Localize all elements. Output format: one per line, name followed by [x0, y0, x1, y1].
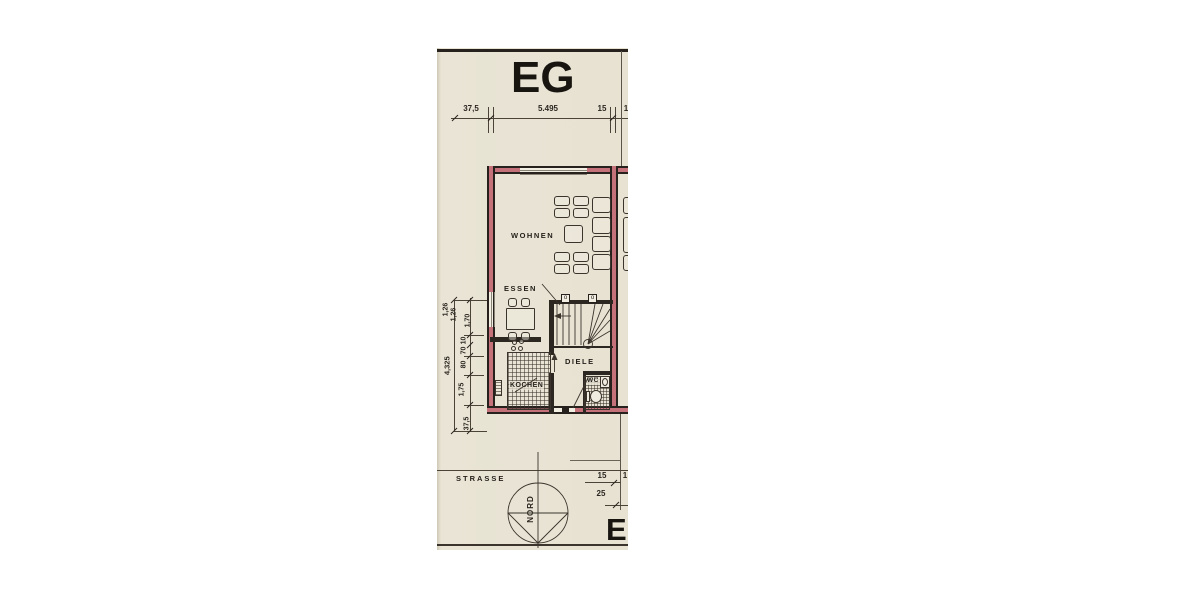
left-dim-label-5: 70	[461, 344, 468, 358]
br-dim-upper-partial: 1	[621, 472, 628, 480]
stair-pivot-right: o	[588, 294, 597, 303]
wc-toilet-bowl	[590, 390, 602, 403]
screenshot-canvas: EG 37,5 5.495 15 1	[0, 0, 1200, 600]
neighbour-sofa-cut	[623, 217, 628, 253]
left-dim-ext	[454, 431, 487, 432]
armchair	[592, 217, 611, 234]
next-sheet-title: EI	[606, 514, 628, 545]
left-dim-label-1: 1,26	[443, 298, 450, 322]
kitchen-pass-arrow	[552, 353, 558, 372]
staircase	[554, 304, 610, 349]
top-dim-label-3: 15	[594, 105, 610, 113]
street-label: STRASSE	[456, 475, 505, 483]
sofa-cushion	[554, 208, 570, 218]
hall-label: DIELE	[565, 358, 595, 366]
left-dim-label-8: 37,5	[464, 412, 471, 436]
top-dim-ext-2	[493, 107, 494, 133]
top-dim-label-2: 5.495	[532, 105, 564, 113]
sofa-cushion	[554, 196, 570, 206]
cooktop-burner	[512, 340, 517, 345]
dining-table	[506, 308, 535, 330]
wc-washbasin	[600, 376, 610, 388]
wall-wc-top	[583, 371, 610, 375]
window-north	[520, 168, 587, 172]
top-dim-label-4: 1	[621, 105, 628, 113]
cooktop-burner	[511, 346, 516, 351]
sofa-cushion	[573, 252, 589, 262]
left-dim-label-6: 80	[461, 358, 468, 372]
stair-pivot-right-glyph: o	[591, 295, 594, 301]
armchair	[592, 254, 611, 270]
floorplan-scan: EG 37,5 5.495 15 1	[437, 48, 628, 550]
terrace-line	[570, 460, 620, 461]
left-dim-ext	[464, 405, 484, 406]
scan-top-border	[437, 49, 628, 52]
top-dim-ext-1	[488, 107, 489, 133]
neighbour-armchair-cut	[623, 197, 628, 214]
wc-label: WC	[586, 378, 600, 385]
wall-stairs-top	[549, 300, 613, 304]
top-dim-line	[451, 118, 628, 119]
left-dim-label-3: 1,70	[465, 309, 472, 333]
sofa-cushion	[573, 196, 589, 206]
sofa-cushion	[573, 208, 589, 218]
dining-chair	[521, 298, 530, 307]
wc-washbasin-bowl	[602, 378, 608, 386]
wall-north	[488, 166, 628, 174]
neighbour-armchair-cut	[623, 255, 628, 271]
br-dim-line-lower	[605, 505, 628, 506]
compass	[508, 452, 568, 548]
sofa-cushion	[573, 264, 589, 274]
left-dim-label-2: 1,26	[451, 303, 458, 327]
wall-west	[487, 166, 495, 414]
scan-bottom-border	[437, 544, 628, 546]
living-room-label: WOHNEN	[511, 232, 554, 240]
dining-room-label: ESSEN	[504, 285, 537, 293]
top-dim-ext-4	[615, 107, 616, 133]
stair-pivot-left: o	[561, 294, 570, 303]
wall-party	[610, 166, 618, 414]
stair-pivot-left-glyph: o	[564, 295, 567, 301]
sheet-title: EG	[511, 56, 575, 100]
coffee-table	[564, 225, 583, 243]
entrance-pier	[562, 406, 569, 414]
br-dim-upper: 15	[594, 472, 610, 480]
dining-chair	[508, 298, 517, 307]
wall-stairs-bottom	[549, 346, 613, 348]
kitchen-radiator	[495, 380, 502, 396]
axis-line-lower	[620, 407, 621, 510]
left-dim-ext	[464, 375, 484, 376]
top-dim-ext-3	[610, 107, 611, 133]
armchair	[592, 236, 611, 252]
top-dim-label-1: 37,5	[457, 105, 485, 113]
north-label: NORD	[527, 494, 535, 524]
left-dim-total-label: 4,325	[443, 352, 451, 380]
axis-line-upper	[621, 51, 622, 168]
window-west	[489, 292, 493, 327]
sofa-cushion	[554, 252, 570, 262]
armchair	[592, 197, 611, 213]
left-dim-label-7: 1,75	[459, 378, 466, 402]
sofa-cushion	[554, 264, 570, 274]
left-dim-ext	[454, 300, 487, 301]
cooktop-burner	[519, 339, 524, 344]
cooktop-burner	[518, 346, 523, 351]
br-dim-lower: 25	[593, 490, 609, 498]
kitchen-label: KOCHEN	[509, 381, 544, 390]
br-dim-line-upper	[585, 482, 621, 483]
